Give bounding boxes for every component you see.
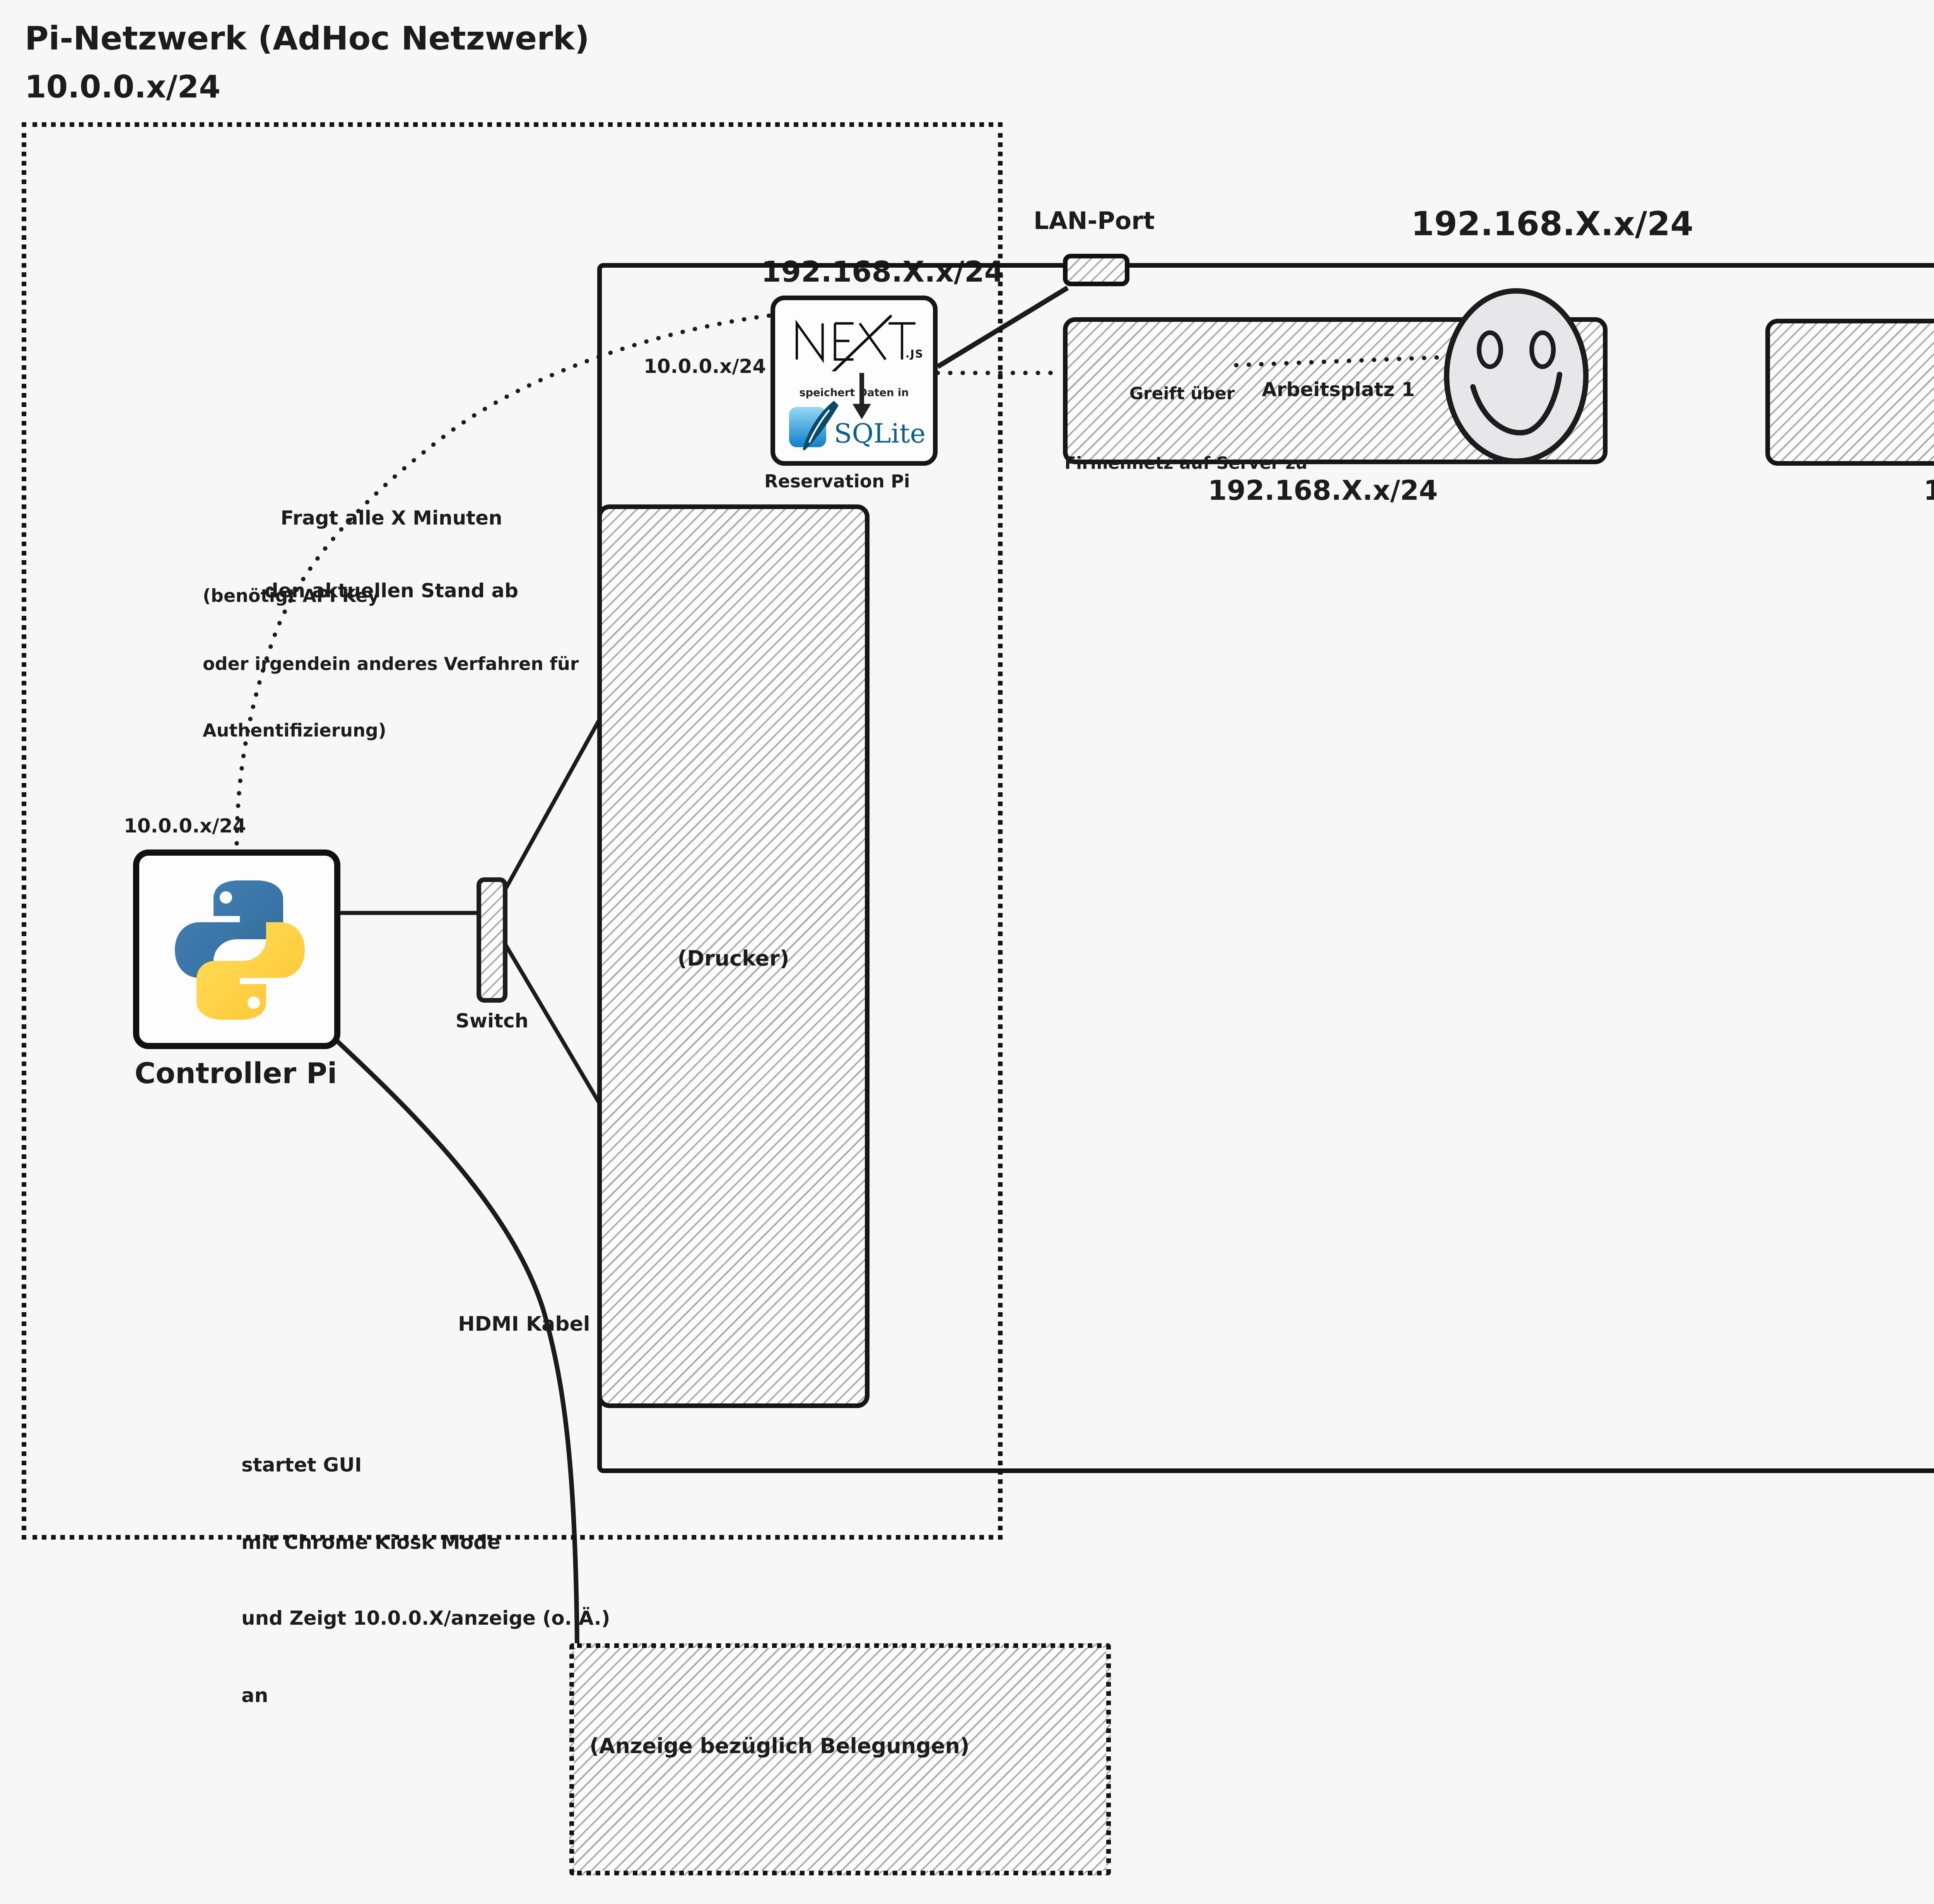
firmennetz-subnet-label: 192.168.X.x/24 — [1411, 206, 1693, 248]
python-logo-icon — [162, 873, 317, 1027]
lan-port-label: LAN-Port — [1034, 207, 1155, 238]
page-subtitle-subnet: 10.0.0.x/24 — [25, 68, 220, 107]
node-reservation-pi: .JS speichert Daten in SQLite — [771, 296, 938, 466]
node-controller-pi — [133, 849, 340, 1049]
diagram-canvas: Pi-Netzwerk (AdHoc Netzwerk) 10.0.0.x/24… — [0, 0, 1934, 1903]
node-drucker-label: (Drucker) — [597, 947, 870, 973]
node-arbeitsplatz-1-label: Arbeitsplatz 1 — [1176, 378, 1501, 402]
nextjs-js-suffix: .JS — [905, 348, 924, 361]
node-arbeitsplatz-2-label: Arbeitsplatz 2 — [1795, 378, 1934, 402]
annotation-firmennetz-access: Greift über Firmennetz auf Server zu — [1064, 336, 1300, 521]
sqlite-wordmark: SQLite — [834, 419, 926, 449]
node-anzeige-label: (Anzeige bezüglich Belegungen) — [589, 1735, 970, 1761]
node-switch — [477, 877, 507, 1003]
sqlite-logo-icon: SQLite — [788, 401, 930, 450]
reservation-middle-text: speichert Daten in — [775, 387, 933, 399]
nextjs-logo-icon — [791, 313, 921, 371]
lan-port-icon — [1063, 254, 1129, 286]
page-title: Pi-Netzwerk (AdHoc Netzwerk) — [25, 19, 589, 59]
